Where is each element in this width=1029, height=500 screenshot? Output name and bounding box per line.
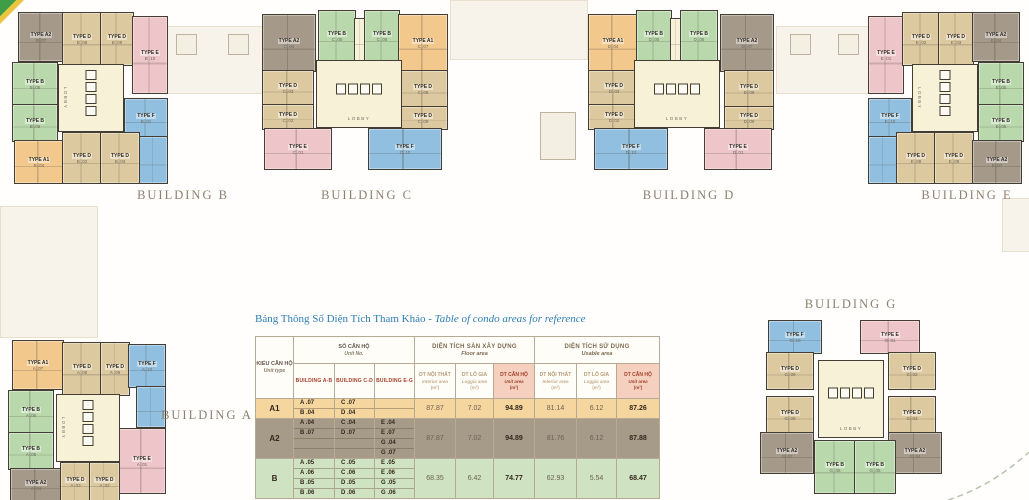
lobby-label: LOBBY xyxy=(917,87,922,110)
unit-type-d: TYPE DB .09 xyxy=(100,12,134,66)
unit-number-label: D .02 xyxy=(609,118,620,123)
col-header-usable-area: DIỆN TÍCH SỬ DỤNG Usable area xyxy=(535,337,660,364)
elevator-core xyxy=(83,400,94,446)
unit-number-label: E .04 xyxy=(991,38,1002,43)
area-value: 74.77 xyxy=(494,459,535,499)
elevator-cell xyxy=(86,70,97,80)
unit-number-label: D .08 xyxy=(744,90,755,95)
unit-number-label: B .03 xyxy=(115,159,126,164)
unit-no-vn: SỐ CĂN HỘ xyxy=(294,344,414,351)
unit-number-label: E .05 xyxy=(996,85,1007,90)
unit-type-a1: TYPE A1B .04 xyxy=(14,140,64,184)
col-header-building-eg: BUILDING E-G xyxy=(375,364,415,399)
unit-type-b: TYPE BB .06 xyxy=(12,104,58,142)
table-row: BA .05A .06B .05B .06C .05C .06D .05D .0… xyxy=(256,459,660,499)
elevator-core xyxy=(86,70,97,116)
col-header-loggia-floor: DT LÔ GIA Loggia area (m²) xyxy=(456,364,494,399)
unit-type-a2: TYPE A2A .04 xyxy=(10,468,62,500)
unit-type-d: TYPE DC .08 xyxy=(398,70,448,108)
unit-type-d: TYPE DB .08 xyxy=(62,12,102,66)
table-title-en: Table of condo areas for reference xyxy=(435,313,586,325)
table-title-vn: Bảng Thông Số Diện Tích Tham Khảo - xyxy=(255,313,432,325)
unit-type-d: TYPE DD .03 xyxy=(588,70,640,106)
elevator-cell xyxy=(690,83,700,94)
elevator-cell xyxy=(940,106,951,116)
floor-area-vn: DIỆN TÍCH SÀN XÂY DỰNG xyxy=(415,343,534,351)
elevator-cell xyxy=(372,83,382,94)
area-value: 7.02 xyxy=(456,399,494,419)
unit-number-label: E .08 xyxy=(911,159,922,164)
unit-no-line: A .05 xyxy=(294,459,334,469)
unit-number-label: D .03 xyxy=(609,89,620,94)
unit-type-b: TYPE BD .05 xyxy=(636,10,672,62)
unit-type-b: TYPE BB .05 xyxy=(12,62,58,106)
unit-number-label: A .08 xyxy=(77,370,87,375)
unit-no-line: C .04 xyxy=(335,419,374,429)
unit-no-cell: C .05C .06D .05D .06 xyxy=(335,459,375,499)
lobby-label: LOBBY xyxy=(840,426,863,431)
table-title: Bảng Thông Số Diện Tích Tham Khảo - Tabl… xyxy=(255,313,585,325)
col-header-unit-area-usable: DT CĂN HỘ Unit area (m²) xyxy=(617,364,660,399)
area-value: 6.12 xyxy=(577,399,617,419)
area-value: 81.14 xyxy=(535,399,577,419)
col-header-building-ab: BUILDING A-B xyxy=(294,364,335,399)
unit-number-label: B .02 xyxy=(77,159,88,164)
unit-number-label: G .10 xyxy=(789,338,800,343)
unit-no-en: Unit No. xyxy=(294,351,414,357)
unit-number-label: G .04 xyxy=(909,454,920,459)
col-header-unit-no: SỐ CĂN HỘ Unit No. xyxy=(294,337,415,364)
unit-number-label: B .04 xyxy=(34,163,45,168)
lobby: LOBBY xyxy=(316,60,402,128)
elevator-cell xyxy=(348,83,358,94)
unit-number-label: D .01 xyxy=(733,150,744,155)
unit-type-d: TYPE DE .02 xyxy=(902,12,940,66)
unit-no-line: G .06 xyxy=(375,489,414,498)
unit-no-line xyxy=(294,439,334,449)
unit-type-a2: TYPE A2G .07 xyxy=(760,432,814,474)
unit-number-label: G .07 xyxy=(781,454,792,459)
unit-number-label: D .04 xyxy=(608,44,619,49)
unit-number-label: G .05 xyxy=(869,468,880,473)
building-name: BUILDING D xyxy=(634,188,744,203)
usable-area-en: Usable area xyxy=(535,351,659,358)
elevator-cell xyxy=(654,83,664,94)
table-row: A2A .04B .07 C .04D .07 E .04E .07G .04G… xyxy=(256,419,660,459)
unit-number-label: A .10 xyxy=(142,367,152,372)
decor-shape xyxy=(838,34,859,55)
unit-no-line: E .06 xyxy=(375,469,414,479)
unit-type-d: TYPE DD .02 xyxy=(588,104,640,130)
unit-number-label: D .06 xyxy=(694,37,705,42)
unit-number-label: B .01 xyxy=(141,119,152,124)
area-value: 7.02 xyxy=(456,419,494,459)
unit-number-label: C .08 xyxy=(418,90,429,95)
unit-no-line: D .05 xyxy=(335,479,374,489)
unit-number-label: A .06 xyxy=(26,413,36,418)
unit-no-line: D .06 xyxy=(335,489,374,498)
unit-type-a1: TYPE A1C .07 xyxy=(398,14,448,72)
unit-number-label: B .05 xyxy=(30,85,41,90)
unit-number-label: G .03 xyxy=(906,416,917,421)
elevator-cell xyxy=(83,412,94,422)
elevator-cell xyxy=(86,94,97,104)
unit-number-label: D .07 xyxy=(742,44,753,49)
col-header-interior-floor: DT NỘI THẤT Interior area (m²) xyxy=(415,364,456,399)
unit-type-a1: TYPE A1A .07 xyxy=(12,340,64,390)
unit-type-b: TYPE BG .05 xyxy=(854,440,896,494)
unit-type-b: TYPE BD .06 xyxy=(680,10,718,62)
unit-number-label: B .08 xyxy=(77,40,88,45)
unit-number-label: A .04 xyxy=(31,486,41,491)
unit-number-label: B .07 xyxy=(36,38,47,43)
unit-number-label: B .06 xyxy=(30,124,41,129)
lobby: LOBBY xyxy=(58,64,124,132)
unit-number-label: E .09 xyxy=(949,159,960,164)
unit-type-vn: KIỂU CĂN HỘ xyxy=(256,361,293,368)
unit-no-line: A .04 xyxy=(294,419,334,429)
unit-number-label: E .01 xyxy=(881,56,892,61)
unit-type-d: TYPE DA .09 xyxy=(100,342,130,396)
elevator-cell xyxy=(83,436,94,446)
elevator-cell xyxy=(360,83,370,94)
elevator-cell xyxy=(336,83,346,94)
unit-number-label: A .03 xyxy=(70,483,80,488)
unit-number-label: E .02 xyxy=(916,40,927,45)
unit-no-line: G .04 xyxy=(375,439,414,449)
unit-number-label: D .05 xyxy=(649,37,660,42)
area-value: 94.89 xyxy=(494,419,535,459)
building-name: BUILDING B xyxy=(128,188,238,203)
unit-type-e: TYPE EG .01 xyxy=(860,320,920,354)
unit-type-b: TYPE BA .06 xyxy=(8,390,54,434)
unit-number-label: D .10 xyxy=(626,150,637,155)
col-header-building-cd: BUILDING C-D xyxy=(335,364,375,399)
unit-block xyxy=(868,136,898,184)
unit-type-a2: TYPE A2C .04 xyxy=(262,14,316,72)
unit-no-cell: A .05A .06B .05B .06 xyxy=(294,459,335,499)
unit-no-line: C .07 xyxy=(335,399,374,409)
elevator-cell xyxy=(940,82,951,92)
unit-type-b: TYPE BE .06 xyxy=(978,104,1024,142)
unit-type-d: TYPE DC .02 xyxy=(262,104,314,130)
unit-type-cell: A2 xyxy=(256,419,294,459)
unit-no-line xyxy=(335,439,374,449)
unit-number-label: E .07 xyxy=(992,163,1003,168)
elevator-core xyxy=(828,387,874,398)
unit-type-d: TYPE DG .09 xyxy=(766,352,814,390)
unit-no-line xyxy=(294,449,334,458)
area-value: 6.42 xyxy=(456,459,494,499)
unit-number-label: C .01 xyxy=(293,150,304,155)
unit-type-b: TYPE BC .06 xyxy=(364,10,400,62)
unit-type-cell: B xyxy=(256,459,294,499)
area-value: 87.88 xyxy=(617,419,660,459)
unit-no-line: A .07 xyxy=(294,399,334,409)
decor-shape xyxy=(790,34,811,55)
col-header-unit-type: KIỂU CĂN HỘ Unit type xyxy=(256,337,294,399)
decor-shape xyxy=(176,34,197,55)
unit-type-d: TYPE DB .03 xyxy=(100,132,140,184)
unit-type-b: TYPE BE .05 xyxy=(978,62,1024,106)
unit-type-a2: TYPE A2G .04 xyxy=(888,432,942,474)
unit-no-line: C .06 xyxy=(335,469,374,479)
unit-type-d: TYPE DB .02 xyxy=(62,132,102,184)
unit-no-line: B .05 xyxy=(294,479,334,489)
area-value: 94.89 xyxy=(494,399,535,419)
unit-number-label: D .09 xyxy=(744,119,755,124)
unit-block xyxy=(138,136,168,184)
unit-no-line: D .04 xyxy=(335,409,374,418)
unit-no-cell: E .04E .07G .04G .07 xyxy=(375,419,415,459)
unit-type-f: TYPE FD .10 xyxy=(594,128,668,170)
unit-no-line: A .06 xyxy=(294,469,334,479)
elevator-cell xyxy=(86,82,97,92)
area-value: 68.35 xyxy=(415,459,456,499)
unit-no-cell: E .05E .06G .05G .06 xyxy=(375,459,415,499)
masterplan-canvas: TYPE A2B .07TYPE DB .08TYPE DB .09TYPE E… xyxy=(0,0,1029,500)
decor-shape xyxy=(540,112,576,160)
unit-number-label: G .08 xyxy=(784,416,795,421)
decor-shape xyxy=(0,206,98,338)
lobby: LOBBY xyxy=(56,394,120,462)
col-header-loggia-usable: DT LÔ GIA Loggia area (m²) xyxy=(577,364,617,399)
unit-type-b: TYPE BG .06 xyxy=(814,440,856,494)
unit-number-label: G .01 xyxy=(884,338,895,343)
unit-number-label: C .02 xyxy=(283,118,294,123)
unit-type-d: TYPE DG .08 xyxy=(766,396,814,434)
unit-number-label: B .09 xyxy=(112,40,123,45)
unit-no-cell: A .07B .04 xyxy=(294,399,335,419)
unit-type-e: TYPE EA .01 xyxy=(118,428,166,494)
elevator-cell xyxy=(83,400,94,410)
unit-type-d: TYPE DE .03 xyxy=(938,12,974,66)
unit-no-line: E .05 xyxy=(375,459,414,469)
unit-type-b: TYPE BA .05 xyxy=(8,432,54,470)
unit-type-a2: TYPE A2E .04 xyxy=(972,12,1020,62)
unit-no-line: G .07 xyxy=(375,449,414,458)
elevator-cell xyxy=(840,387,850,398)
unit-number-label: G .06 xyxy=(829,468,840,473)
unit-type-cell: A1 xyxy=(256,399,294,419)
unit-no-line xyxy=(375,399,414,409)
unit-no-line: D .07 xyxy=(335,429,374,439)
unit-number-label: G .09 xyxy=(784,372,795,377)
unit-type-a2: TYPE A2D .07 xyxy=(720,14,774,72)
lobby-label: LOBBY xyxy=(666,116,689,121)
area-value: 6.12 xyxy=(577,419,617,459)
unit-type-f: TYPE FC .10 xyxy=(368,128,442,170)
unit-number-label: A .05 xyxy=(26,452,36,457)
unit-type-b: TYPE BC .05 xyxy=(318,10,356,62)
unit-no-line: E .07 xyxy=(375,429,414,439)
unit-type-d: TYPE DC .03 xyxy=(262,70,314,106)
area-value: 87.87 xyxy=(415,419,456,459)
unit-number-label: A .02 xyxy=(99,483,109,488)
unit-number-label: E .06 xyxy=(996,124,1007,129)
area-value: 62.93 xyxy=(535,459,577,499)
lobby: LOBBY xyxy=(634,60,720,128)
unit-no-line: B .07 xyxy=(294,429,334,439)
unit-no-line: E .04 xyxy=(375,419,414,429)
area-value: 81.76 xyxy=(535,419,577,459)
unit-type-e: TYPE EE .01 xyxy=(868,16,904,94)
unit-type-d: TYPE DA .03 xyxy=(60,462,91,500)
elevator-cell xyxy=(678,83,688,94)
unit-type-e: TYPE ED .01 xyxy=(704,128,772,170)
unit-type-d: TYPE DA .02 xyxy=(89,462,120,500)
col-header-floor-area: DIỆN TÍCH SÀN XÂY DỰNG Floor area xyxy=(415,337,535,364)
elevator-cell xyxy=(864,387,874,398)
unit-number-label: C .07 xyxy=(418,44,429,49)
unit-number-label: C .03 xyxy=(283,89,294,94)
lobby-label: LOBBY xyxy=(61,417,66,440)
building-name: BUILDING A xyxy=(152,408,262,423)
unit-number-label: C .05 xyxy=(332,37,343,42)
unit-number-label: A .01 xyxy=(137,462,147,467)
area-value: 5.54 xyxy=(577,459,617,499)
condo-areas-table: KIỂU CĂN HỘ Unit type SỐ CĂN HỘ Unit No.… xyxy=(255,336,660,499)
unit-number-label: B .10 xyxy=(145,56,156,61)
unit-type-d: TYPE DC .09 xyxy=(398,106,448,130)
lobby: LOBBY xyxy=(912,64,978,132)
unit-type-f: TYPE FG .10 xyxy=(768,320,822,354)
elevator-cell xyxy=(86,106,97,116)
unit-type-f: TYPE FA .10 xyxy=(128,344,166,388)
unit-type-e: TYPE EC .01 xyxy=(264,128,332,170)
elevator-cell xyxy=(828,387,838,398)
unit-number-label: C .06 xyxy=(377,37,388,42)
unit-no-line: G .05 xyxy=(375,479,414,489)
table-row: A1A .07B .04C .07D .04 87.877.0294.8981.… xyxy=(256,399,660,419)
unit-no-line: C .05 xyxy=(335,459,374,469)
elevator-core xyxy=(654,83,700,94)
elevator-cell xyxy=(666,83,676,94)
unit-type-d: TYPE DA .08 xyxy=(62,342,102,396)
unit-no-cell: C .07D .04 xyxy=(335,399,375,419)
elevator-cell xyxy=(940,70,951,80)
unit-type-d: TYPE DD .09 xyxy=(724,106,774,130)
unit-no-line xyxy=(375,409,414,418)
unit-no-cell xyxy=(375,399,415,419)
col-header-interior-usable: DT NỘI THẤT Interior area (m²) xyxy=(535,364,577,399)
unit-type-a1: TYPE A1D .04 xyxy=(588,14,638,72)
elevator-cell xyxy=(83,424,94,434)
unit-type-a2: TYPE A2B .07 xyxy=(18,12,64,62)
decor-shape xyxy=(228,34,249,55)
area-value: 87.26 xyxy=(617,399,660,419)
area-value: 87.87 xyxy=(415,399,456,419)
elevator-cell xyxy=(940,94,951,104)
unit-number-label: C .04 xyxy=(284,44,295,49)
elevator-core xyxy=(940,70,951,116)
unit-no-cell: A .04B .07 xyxy=(294,419,335,459)
unit-type-d: TYPE DG .03 xyxy=(888,396,936,434)
unit-number-label: G .02 xyxy=(906,372,917,377)
decor-shape xyxy=(450,0,588,60)
col-header-unit-area-floor: DT CĂN HỘ Unit area (m²) xyxy=(494,364,535,399)
unit-type-e: TYPE EB .10 xyxy=(132,16,168,94)
unit-no-line: B .04 xyxy=(294,409,334,418)
elevator-cell xyxy=(852,387,862,398)
unit-number-label: E .03 xyxy=(951,40,962,45)
decor-shape xyxy=(1002,198,1029,252)
area-value: 68.47 xyxy=(617,459,660,499)
unit-number-label: C .10 xyxy=(400,150,411,155)
unit-number-label: A .07 xyxy=(33,366,43,371)
unit-no-cell: C .04D .07 xyxy=(335,419,375,459)
unit-number-label: C .09 xyxy=(418,119,429,124)
building-name: BUILDING G xyxy=(796,297,906,312)
unit-number-label: A .09 xyxy=(110,370,120,375)
floor-area-en: Floor area xyxy=(415,351,534,358)
lobby: LOBBY xyxy=(818,360,884,438)
unit-no-line xyxy=(335,449,374,458)
elevator-core xyxy=(336,83,382,94)
unit-number-label: E .10 xyxy=(885,119,896,124)
building-name: BUILDING E xyxy=(912,188,1022,203)
unit-type-d: TYPE DE .09 xyxy=(934,132,974,184)
lobby-label: LOBBY xyxy=(63,87,68,110)
unit-no-line: B .06 xyxy=(294,489,334,498)
unit-type-d: TYPE DE .08 xyxy=(896,132,936,184)
lobby-label: LOBBY xyxy=(348,116,371,121)
usable-area-vn: DIỆN TÍCH SỬ DỤNG xyxy=(535,343,659,351)
unit-type-en: Unit type xyxy=(256,368,293,374)
unit-type-d: TYPE DG .02 xyxy=(888,352,936,390)
building-name: BUILDING C xyxy=(312,188,422,203)
unit-type-d: TYPE DD .08 xyxy=(724,70,774,108)
unit-type-a2: TYPE A2E .07 xyxy=(972,140,1022,184)
